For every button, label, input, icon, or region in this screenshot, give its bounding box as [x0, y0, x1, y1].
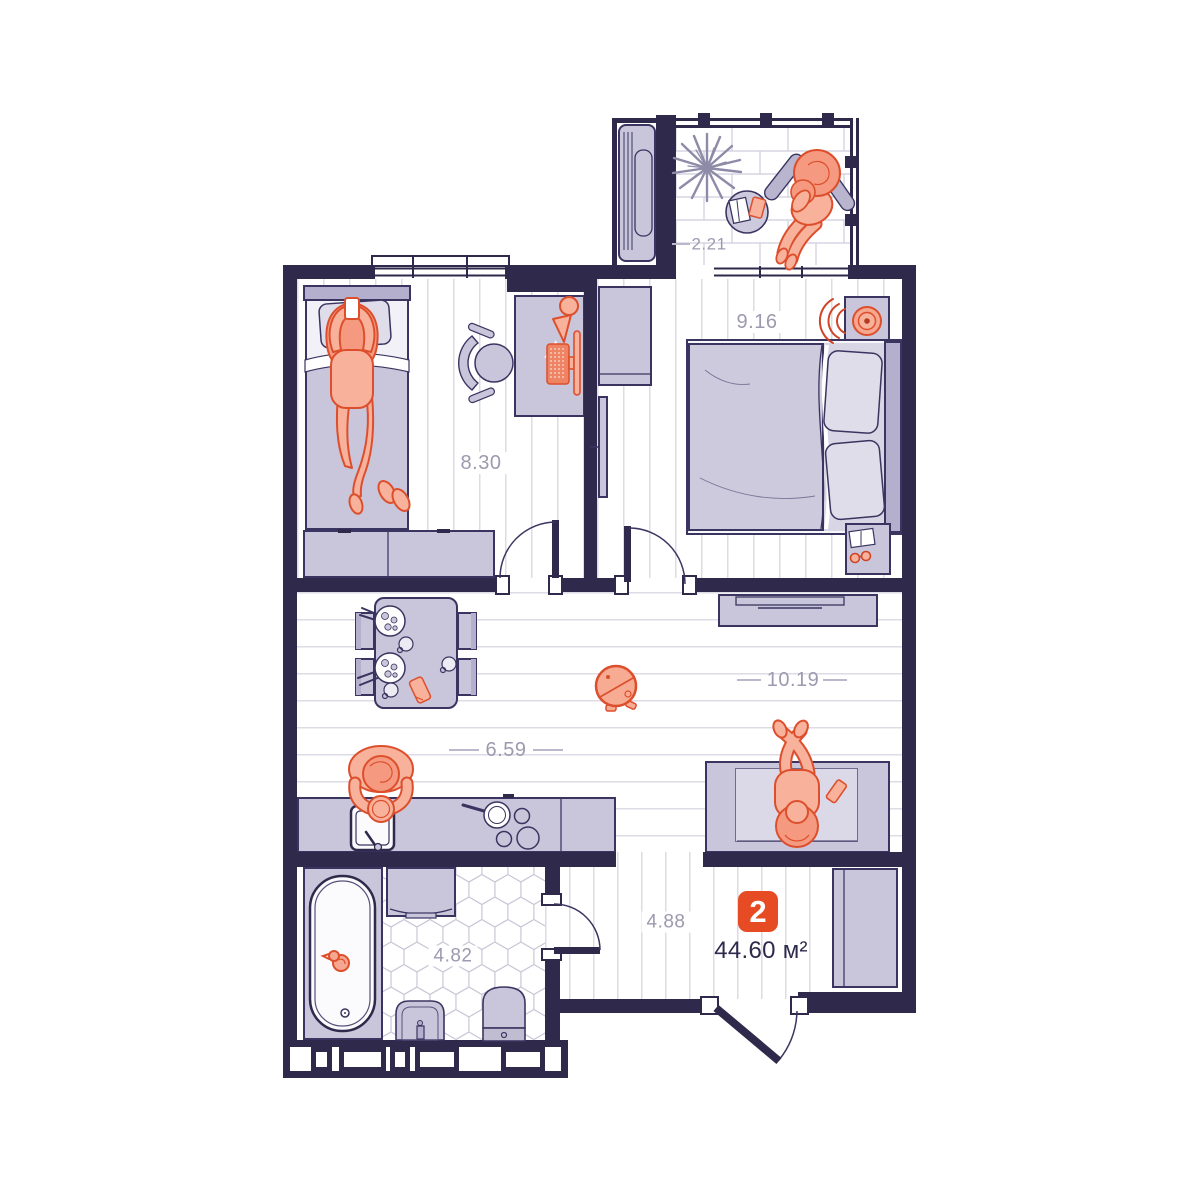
room-area-label-bathroom: 4.82 [429, 946, 478, 967]
table-setting [358, 606, 456, 704]
keyboard [547, 344, 569, 384]
entry-door [701, 997, 808, 1061]
bed-double-details [700, 345, 885, 529]
monitor [569, 331, 580, 395]
washing-machine-front [390, 909, 452, 918]
door-bathroom [542, 894, 600, 960]
office-chair [459, 322, 513, 403]
balcony-table [726, 191, 768, 233]
tv [736, 597, 844, 608]
glasses-icon [851, 552, 871, 563]
room-area-label-kitchen: 6.59 [481, 739, 532, 761]
bathroom-sink [396, 1001, 444, 1040]
room-area-label-hallway: 4.88 [642, 912, 691, 933]
leader-line [533, 749, 563, 751]
smart-speaker-icon [820, 299, 881, 343]
plant-icon [673, 134, 741, 201]
robot-vacuum-icon [596, 666, 637, 711]
door-bedroom-left [496, 520, 562, 594]
leader-line [737, 679, 761, 681]
room-area-label-living: 10.19 [762, 669, 825, 691]
toilet [483, 987, 525, 1041]
leader-line [823, 679, 847, 681]
leader-line [449, 749, 479, 751]
person-on-single-bed [326, 298, 377, 515]
room-area-label-bedroom-left: 8.30 [456, 452, 507, 474]
ac-unit-detail [624, 132, 652, 250]
slippers [375, 478, 413, 514]
total-area-label: 44.60 м² [714, 937, 808, 965]
room-area-label-bedroom-right: 9.16 [732, 311, 783, 333]
nightstand-items [849, 528, 875, 562]
bathtub [310, 876, 375, 1031]
remote-icon [826, 779, 848, 803]
room-area-label-balcony: 2.21 [686, 235, 731, 254]
phone-icon [409, 676, 432, 704]
unit-number-badge: 2 [738, 891, 778, 932]
person-on-sofa [771, 718, 819, 847]
door-bedroom-right [615, 526, 696, 594]
floor-plan: 2.21 8.30 9.16 6.59 10.19 4.88 4.82 2 44… [0, 0, 1200, 1200]
stove [463, 802, 539, 849]
